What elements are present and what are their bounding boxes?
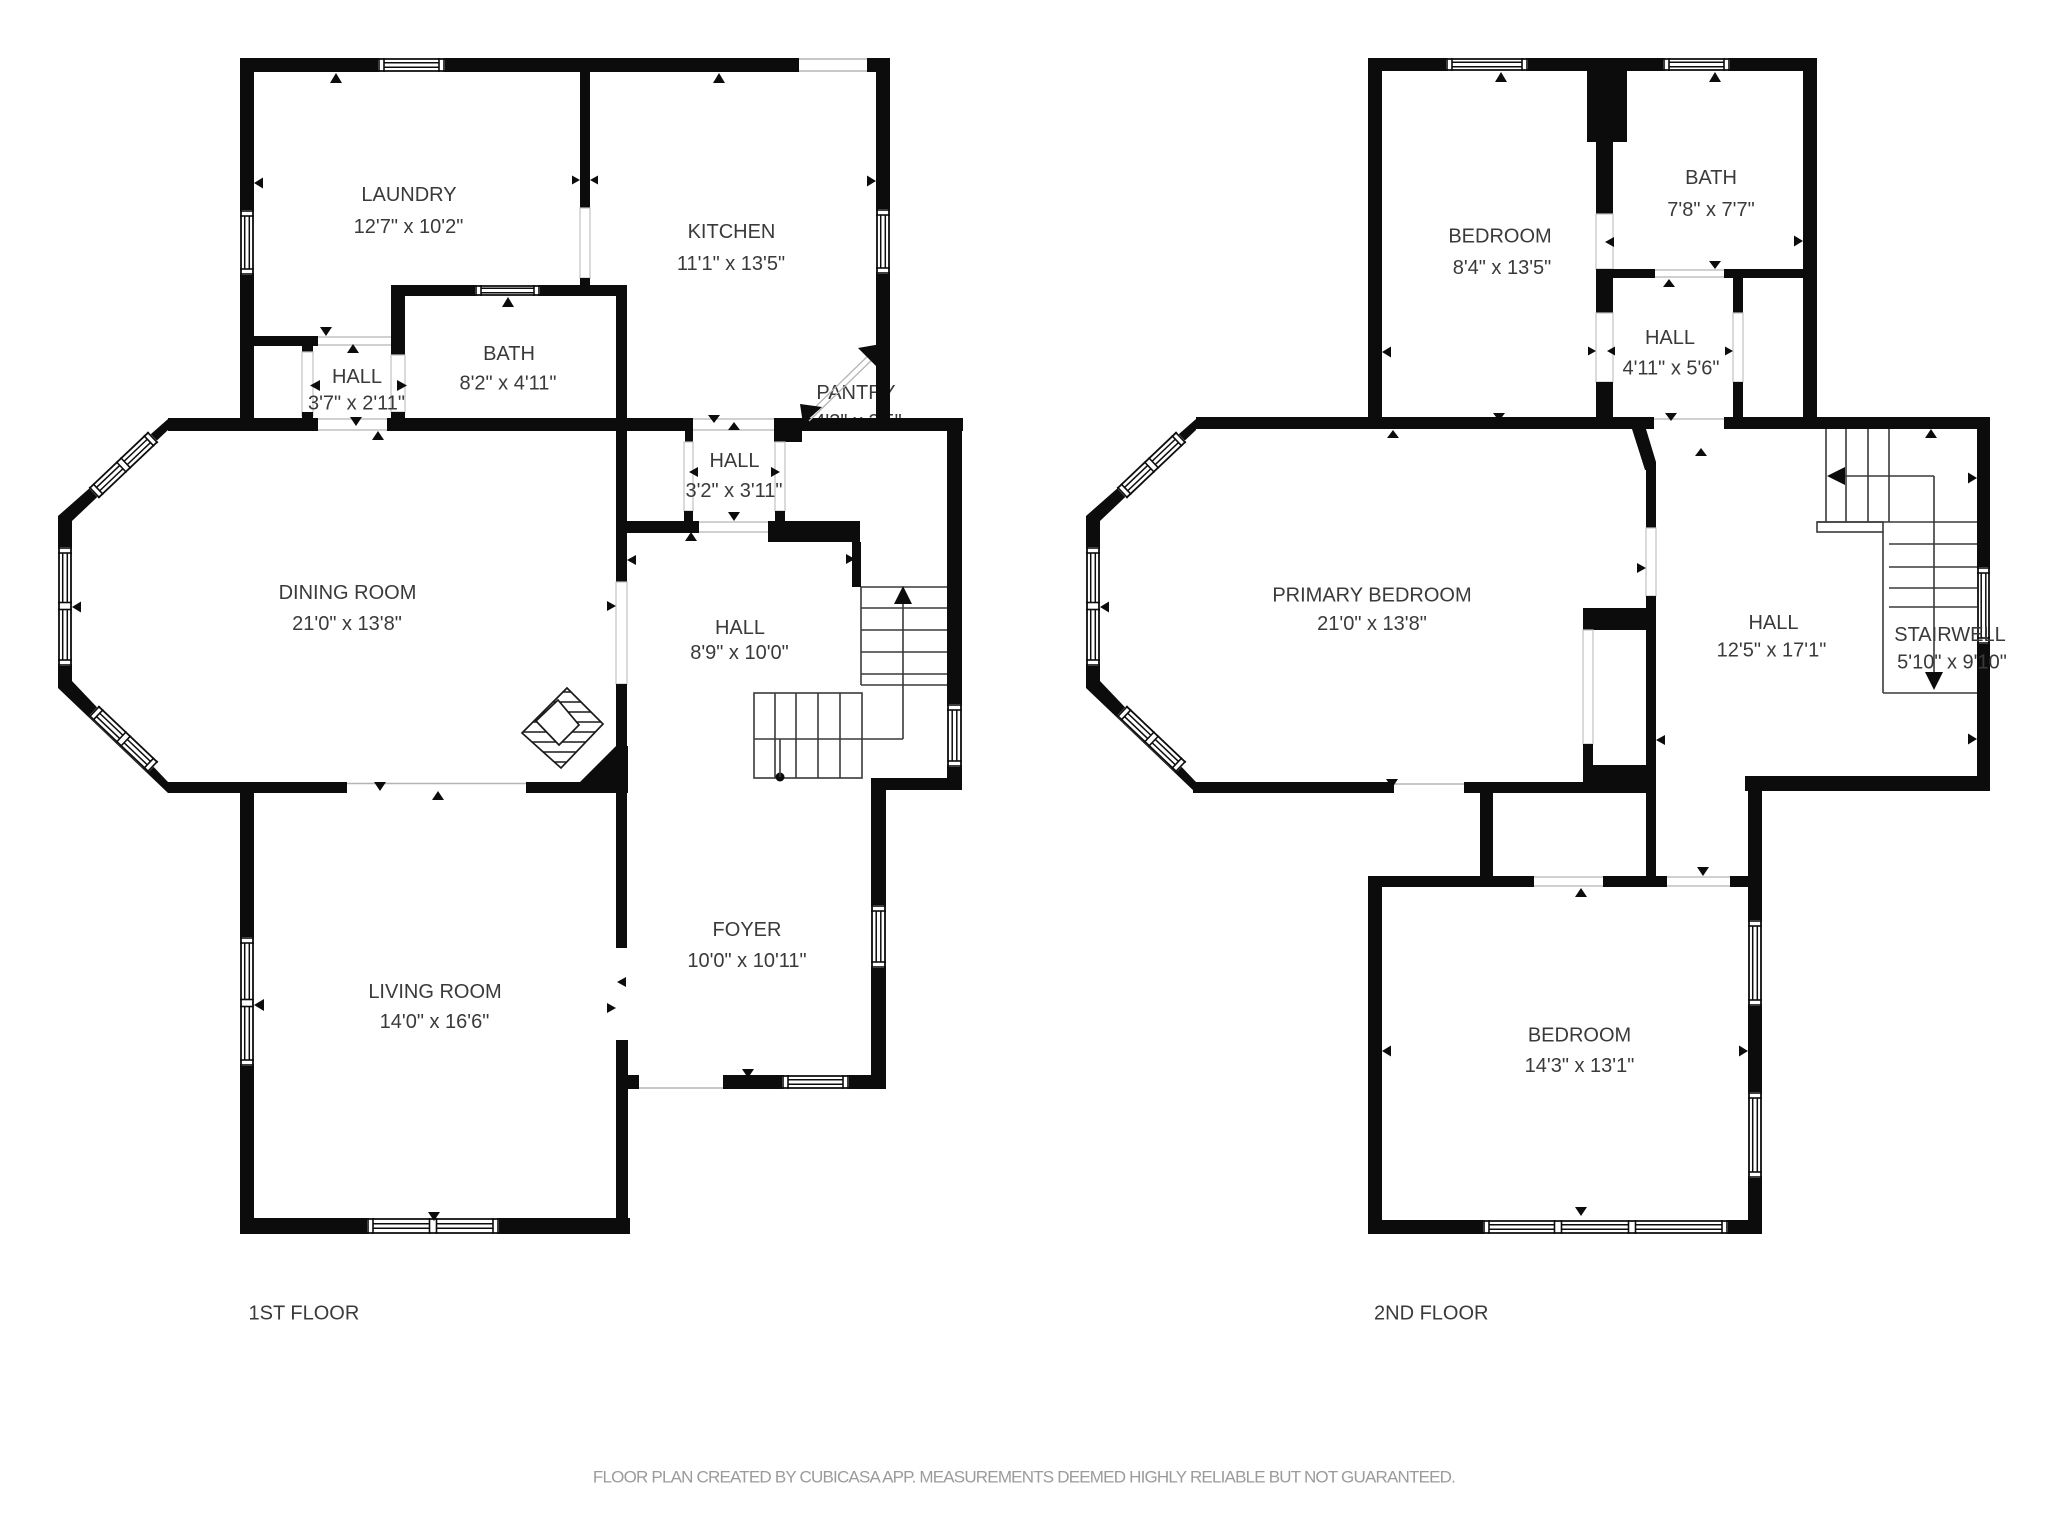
svg-text:LAUNDRY: LAUNDRY [361, 184, 456, 206]
svg-text:10'0" x 10'11": 10'0" x 10'11" [687, 950, 806, 972]
svg-text:FOYER: FOYER [713, 919, 782, 941]
svg-text:12'5" x 17'1": 12'5" x 17'1" [1717, 640, 1827, 662]
svg-text:KITCHEN: KITCHEN [688, 221, 776, 243]
svg-text:PRIMARY BEDROOM: PRIMARY BEDROOM [1272, 585, 1471, 607]
svg-text:8'4" x 13'5": 8'4" x 13'5" [1453, 257, 1552, 279]
svg-text:BATH: BATH [1685, 167, 1737, 189]
svg-text:HALL: HALL [1645, 327, 1695, 349]
svg-text:3'2" x 3'11": 3'2" x 3'11" [685, 480, 782, 502]
svg-text:FLOOR PLAN CREATED BY CUBICASA: FLOOR PLAN CREATED BY CUBICASA APP. MEAS… [593, 1468, 1455, 1487]
svg-text:HALL: HALL [1748, 612, 1798, 634]
svg-text:5'10" x 9'10": 5'10" x 9'10" [1897, 652, 2007, 674]
svg-text:1ST FLOOR: 1ST FLOOR [249, 1303, 360, 1325]
svg-text:LIVING ROOM: LIVING ROOM [368, 981, 501, 1003]
svg-text:BEDROOM: BEDROOM [1528, 1025, 1631, 1047]
svg-text:HALL: HALL [709, 450, 759, 472]
svg-text:8'2" x 4'11": 8'2" x 4'11" [459, 373, 556, 395]
svg-text:7'8" x 7'7": 7'8" x 7'7" [1667, 199, 1754, 221]
svg-text:2ND FLOOR: 2ND FLOOR [1374, 1303, 1488, 1325]
svg-text:3'7" x 2'11": 3'7" x 2'11" [308, 393, 405, 415]
svg-text:4'11" x 5'6": 4'11" x 5'6" [1622, 358, 1719, 380]
svg-text:BATH: BATH [483, 343, 535, 365]
svg-text:HALL: HALL [332, 366, 382, 388]
svg-text:HALL: HALL [715, 617, 765, 639]
svg-text:14'0" x 16'6": 14'0" x 16'6" [380, 1011, 490, 1033]
svg-text:BEDROOM: BEDROOM [1448, 226, 1551, 248]
svg-text:21'0" x 13'8": 21'0" x 13'8" [1317, 613, 1427, 635]
svg-text:DINING ROOM: DINING ROOM [279, 582, 417, 604]
svg-text:12'7" x 10'2": 12'7" x 10'2" [354, 216, 464, 238]
svg-text:14'3" x 13'1": 14'3" x 13'1" [1525, 1055, 1635, 1077]
svg-text:STAIRWELL: STAIRWELL [1894, 624, 2006, 646]
svg-text:11'1" x 13'5": 11'1" x 13'5" [677, 253, 785, 275]
svg-text:21'0" x 13'8": 21'0" x 13'8" [292, 613, 402, 635]
svg-text:8'9" x 10'0": 8'9" x 10'0" [690, 642, 789, 664]
